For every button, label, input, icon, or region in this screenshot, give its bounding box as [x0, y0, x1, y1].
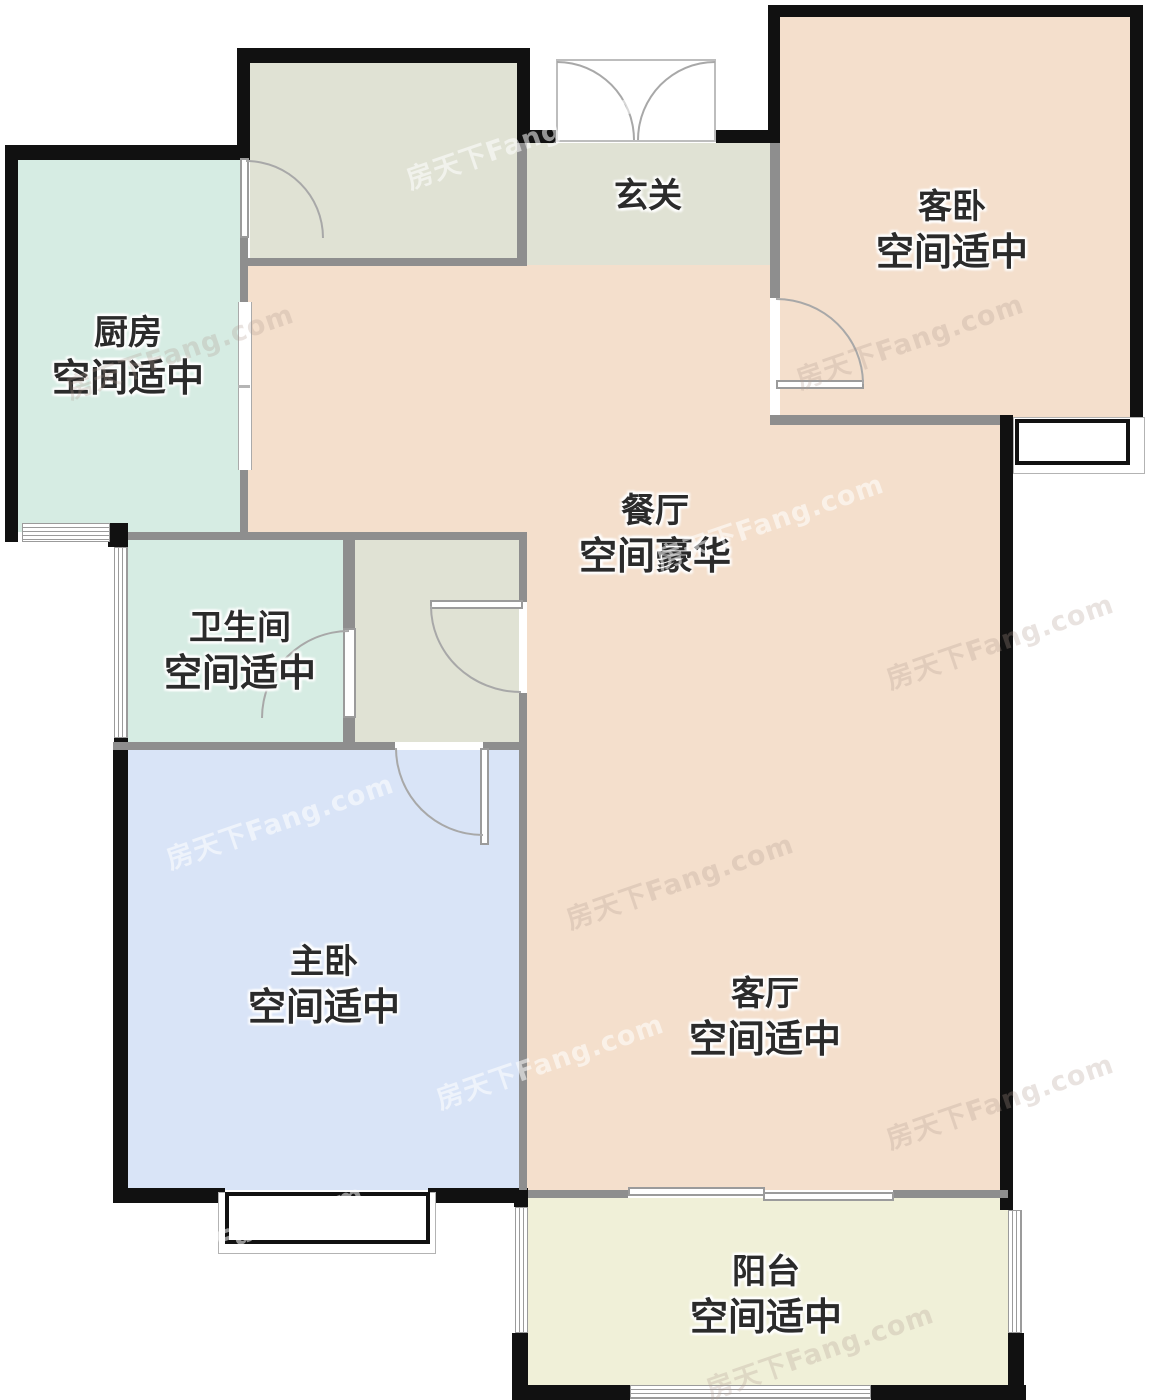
- room-label-bathroom: 卫生间 空间适中: [164, 607, 316, 697]
- wall: [113, 745, 128, 1203]
- wall: [768, 5, 780, 143]
- window: [1008, 1210, 1022, 1333]
- partition: [343, 540, 355, 628]
- wall: [530, 130, 556, 143]
- room-label-foyer: 玄关: [614, 175, 682, 218]
- partition: [240, 470, 248, 540]
- room-label-guest-bedroom: 客卧 空间适中: [876, 186, 1028, 276]
- partition: [483, 742, 527, 750]
- partition: [240, 238, 248, 302]
- wall: [237, 48, 250, 158]
- window: [515, 1207, 528, 1333]
- wall: [237, 48, 530, 63]
- room-label-balcony: 阳台 空间适中: [690, 1251, 842, 1341]
- room-label-master-bedroom: 主卧 空间适中: [248, 941, 400, 1031]
- wall: [514, 1188, 528, 1207]
- sliding-door: [628, 1187, 765, 1196]
- wall: [1008, 1333, 1024, 1400]
- partition: [770, 143, 780, 298]
- wall: [768, 5, 1143, 17]
- partition: [113, 742, 395, 750]
- room-label-dining: 餐厅 空间豪华: [579, 490, 731, 580]
- partition: [519, 693, 527, 1190]
- wall: [5, 145, 250, 160]
- partition: [240, 258, 527, 266]
- wall: [512, 1385, 630, 1400]
- wall: [428, 1188, 516, 1203]
- window: [630, 1385, 871, 1399]
- partition: [238, 385, 250, 388]
- partition: [519, 540, 527, 602]
- room-label-kitchen: 厨房 空间适中: [52, 312, 204, 402]
- wall: [5, 145, 18, 542]
- window: [114, 547, 128, 738]
- partition: [528, 1190, 628, 1198]
- partition: [770, 415, 1000, 425]
- wall: [1130, 5, 1143, 434]
- bay-window: [1015, 419, 1130, 465]
- wall: [716, 130, 780, 143]
- sliding-door: [763, 1192, 894, 1201]
- partition: [128, 532, 527, 540]
- partition: [517, 143, 527, 266]
- partition: [893, 1190, 1008, 1198]
- wall: [1000, 415, 1013, 1210]
- room-label-living-room: 客厅 空间适中: [689, 973, 841, 1063]
- window: [22, 523, 110, 542]
- wall: [108, 523, 128, 547]
- floor-plan: 玄关 客卧 空间适中 厨房 空间适中 餐厅 空间豪华 卫生间 空间适中 主卧 空…: [0, 0, 1151, 1400]
- bay-window: [225, 1192, 430, 1244]
- partition: [343, 718, 355, 745]
- wall: [517, 48, 530, 143]
- wall: [871, 1385, 1026, 1400]
- wall: [113, 1188, 225, 1203]
